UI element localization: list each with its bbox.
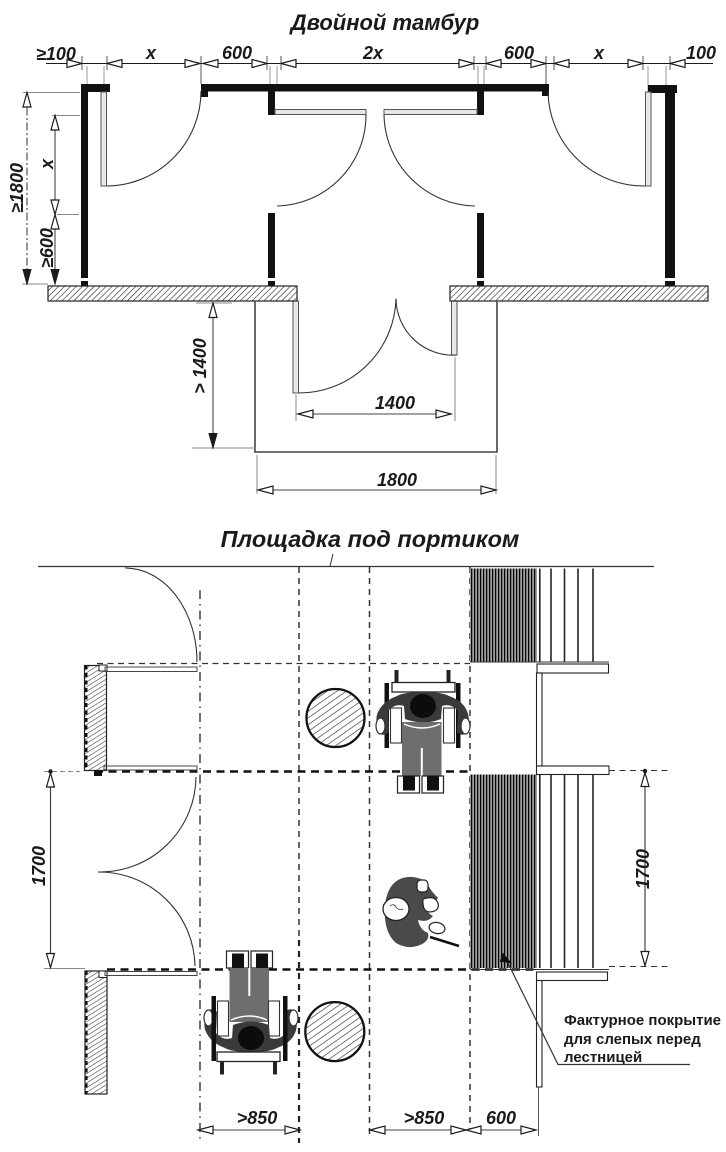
svg-text:Двойной тамбур: Двойной тамбур <box>289 10 480 35</box>
svg-text:лестницей: лестницей <box>564 1049 642 1066</box>
svg-text:x: x <box>37 158 57 170</box>
svg-text:x: x <box>593 43 605 63</box>
svg-text:Площадка под портиком: Площадка под портиком <box>221 526 520 552</box>
svg-text:600: 600 <box>222 43 252 63</box>
svg-text:100: 100 <box>686 43 716 63</box>
svg-text:2x: 2x <box>362 43 384 63</box>
svg-text:>850: >850 <box>237 1108 278 1128</box>
svg-text:для слепых перед: для слепых перед <box>564 1031 701 1048</box>
svg-text:1700: 1700 <box>29 846 49 886</box>
svg-text:> 1400: > 1400 <box>190 338 210 394</box>
svg-text:Фактурное покрытие: Фактурное покрытие <box>564 1012 721 1029</box>
svg-text:1400: 1400 <box>375 393 415 413</box>
svg-text:≥600: ≥600 <box>37 228 57 268</box>
svg-text:1800: 1800 <box>377 470 417 490</box>
svg-text:600: 600 <box>504 43 534 63</box>
svg-text:≥1800: ≥1800 <box>7 163 27 213</box>
svg-text:≥100: ≥100 <box>36 44 76 64</box>
svg-text:1700: 1700 <box>633 849 653 889</box>
svg-text:x: x <box>145 43 157 63</box>
svg-text:>850: >850 <box>404 1108 445 1128</box>
svg-text:600: 600 <box>486 1108 516 1128</box>
